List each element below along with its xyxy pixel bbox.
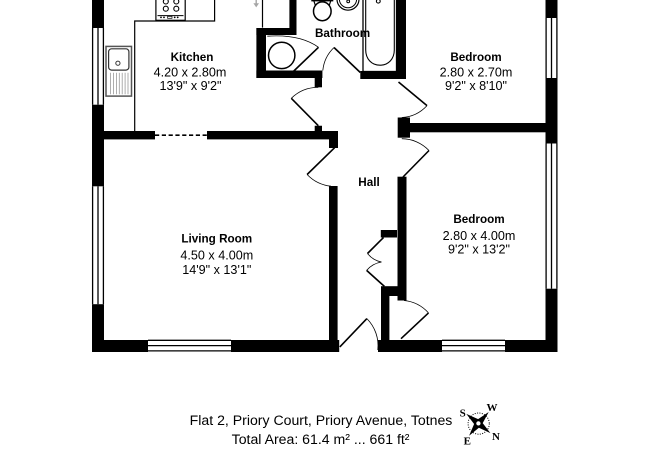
- svg-text:Living Room: Living Room: [181, 232, 252, 245]
- svg-text:S: S: [460, 408, 466, 420]
- svg-text:9'2" x 8'10": 9'2" x 8'10": [445, 79, 507, 93]
- svg-text:2.80 x 2.70m: 2.80 x 2.70m: [440, 65, 513, 79]
- svg-text:N: N: [492, 431, 500, 443]
- svg-text:14'9" x 13'1": 14'9" x 13'1": [182, 263, 251, 277]
- svg-text:4.20 x 2.80m: 4.20 x 2.80m: [154, 65, 227, 79]
- svg-text:Bedroom: Bedroom: [450, 51, 501, 64]
- svg-text:E: E: [464, 436, 471, 448]
- svg-text:Flat 2, Priory Court, Priory A: Flat 2, Priory Court, Priory Avenue, Tot…: [190, 412, 453, 428]
- svg-text:Hall: Hall: [358, 176, 379, 189]
- svg-text:9'2" x 13'2": 9'2" x 13'2": [448, 243, 510, 257]
- svg-text:Bedroom: Bedroom: [453, 213, 504, 226]
- svg-text:Kitchen: Kitchen: [171, 51, 214, 64]
- svg-text:13'9" x 9'2": 13'9" x 9'2": [159, 79, 221, 93]
- svg-text:4.50 x 4.00m: 4.50 x 4.00m: [180, 248, 253, 262]
- svg-text:W: W: [487, 402, 498, 414]
- svg-text:Bathroom: Bathroom: [315, 27, 370, 40]
- svg-text:Total Area: 61.4 m² ... 661 ft: Total Area: 61.4 m² ... 661 ft²: [232, 431, 410, 447]
- svg-text:2.80 x 4.00m: 2.80 x 4.00m: [443, 229, 516, 243]
